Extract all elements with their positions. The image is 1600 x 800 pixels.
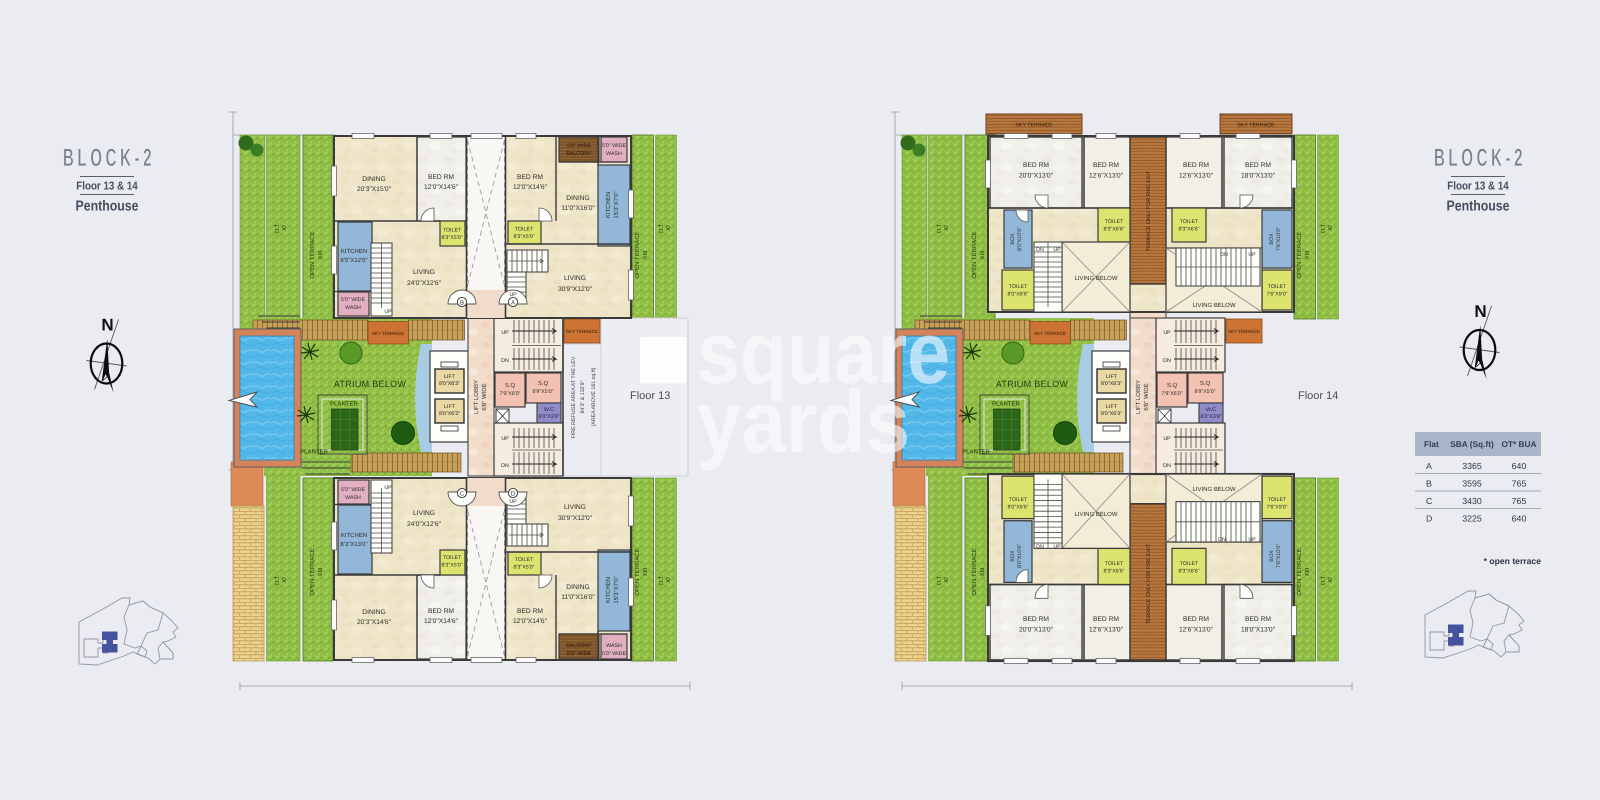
- svg-text:OPEN TERRACE: OPEN TERRACE: [634, 548, 641, 595]
- svg-text:BLOCK-2: BLOCK-2: [63, 145, 155, 173]
- svg-text:W.C: W.C: [544, 407, 554, 413]
- svg-text:BED RM: BED RM: [1023, 162, 1049, 169]
- svg-text:11'0"X16'0": 11'0"X16'0": [561, 205, 595, 212]
- svg-text:KITCHEN: KITCHEN: [341, 248, 367, 255]
- svg-text:BALGONY: BALGONY: [566, 643, 592, 649]
- svg-text:B: B: [1426, 479, 1432, 489]
- svg-text:XI: XI: [281, 225, 288, 231]
- svg-text:Penthouse: Penthouse: [1446, 199, 1509, 215]
- svg-text:LIVING BELOW: LIVING BELOW: [1192, 486, 1235, 493]
- svg-text:D: D: [511, 491, 516, 498]
- svg-text:5'0" WIDE: 5'0" WIDE: [341, 487, 366, 493]
- svg-text:N: N: [101, 316, 113, 335]
- svg-text:Floor 14: Floor 14: [1298, 390, 1338, 402]
- svg-text:BED RM: BED RM: [1023, 616, 1049, 623]
- svg-text:TOILET: TOILET: [1268, 497, 1287, 503]
- svg-text:UP: UP: [509, 499, 517, 505]
- svg-text:8'3"X5'0": 8'3"X5'0": [513, 565, 534, 571]
- svg-text:UP: UP: [1053, 247, 1061, 253]
- svg-text:BED RM: BED RM: [1245, 162, 1271, 169]
- svg-text:* open terrace: * open terrace: [1484, 556, 1542, 566]
- svg-text:20'0"X13'0": 20'0"X13'0": [1019, 173, 1054, 180]
- svg-text:5'0" WIDE: 5'0" WIDE: [341, 297, 366, 303]
- svg-text:8'3"X6'6": 8'3"X6'6": [1178, 569, 1199, 575]
- svg-text:765: 765: [1512, 496, 1527, 506]
- svg-text:XI: XI: [281, 577, 288, 583]
- svg-text:8'0"X10'6": 8'0"X10'6": [1017, 227, 1023, 251]
- svg-text:BED RM: BED RM: [517, 608, 543, 615]
- svg-text:3225: 3225: [1462, 514, 1482, 524]
- svg-text:20'0"X13'0": 20'0"X13'0": [1019, 627, 1054, 634]
- svg-text:TOILET: TOILET: [1180, 219, 1199, 225]
- svg-text:8'0"X8'6": 8'0"X8'6": [1007, 292, 1028, 298]
- svg-text:DN: DN: [1036, 247, 1044, 253]
- svg-text:BOX: BOX: [1010, 550, 1016, 562]
- svg-text:DN: DN: [1220, 252, 1228, 258]
- svg-text:ATRIUM BELOW: ATRIUM BELOW: [334, 379, 407, 389]
- svg-text:640: 640: [1512, 461, 1527, 471]
- svg-text:7'9"X6'0": 7'9"X6'0": [499, 391, 520, 397]
- svg-text:(AREA ABOVE 161 sq.ft): (AREA ABOVE 161 sq.ft): [591, 367, 597, 426]
- svg-text:12'6"X13'0": 12'6"X13'0": [1179, 173, 1214, 180]
- svg-text:TERRACE ONLY FOR FIRE EXIT: TERRACE ONLY FOR FIRE EXIT: [1146, 170, 1152, 251]
- svg-text:C: C: [460, 491, 465, 498]
- svg-text:TOILET: TOILET: [1180, 561, 1199, 567]
- svg-text:BED RM: BED RM: [1183, 162, 1209, 169]
- svg-text:LIFT: LIFT: [444, 404, 456, 410]
- svg-text:11'0"X16'0": 11'0"X16'0": [561, 594, 595, 601]
- svg-text:7'6"X10'0": 7'6"X10'0": [1276, 227, 1282, 251]
- svg-text:XI: XI: [665, 577, 672, 583]
- svg-text:C: C: [1426, 496, 1433, 506]
- svg-text:BED RM: BED RM: [1183, 616, 1209, 623]
- svg-text:TOILET: TOILET: [515, 227, 534, 233]
- svg-text:BED RM: BED RM: [517, 174, 543, 181]
- svg-text:SBA (Sq.ft): SBA (Sq.ft): [1450, 439, 1494, 449]
- svg-text:LIVING: LIVING: [564, 504, 586, 511]
- svg-text:Flat: Flat: [1424, 439, 1439, 449]
- svg-text:UP: UP: [501, 330, 509, 336]
- svg-text:15'3"X7'0": 15'3"X7'0": [613, 191, 620, 218]
- svg-text:S.Q: S.Q: [505, 382, 516, 389]
- svg-text:18'0"X13'0": 18'0"X13'0": [1241, 173, 1276, 180]
- svg-text:8'9"X5'0": 8'9"X5'0": [532, 389, 553, 395]
- svg-text:O.T.: O.T.: [274, 574, 281, 585]
- svg-text:640: 640: [1512, 514, 1527, 524]
- svg-text:5'0" WIDE: 5'0" WIDE: [567, 651, 592, 657]
- svg-text:WASH: WASH: [606, 151, 622, 157]
- svg-text:8'0"X10'6": 8'0"X10'6": [1017, 544, 1023, 568]
- svg-text:8'0"X6'3": 8'0"X6'3": [439, 411, 460, 417]
- svg-text:BED RM: BED RM: [428, 174, 454, 181]
- svg-text:5'0" WIDE: 5'0" WIDE: [567, 143, 592, 149]
- svg-text:XI: XI: [665, 225, 672, 231]
- svg-text:KITCHEN: KITCHEN: [605, 192, 612, 218]
- svg-text:8'0"X6'3": 8'0"X6'3": [439, 381, 460, 387]
- svg-text:30'9"X12'0": 30'9"X12'0": [558, 515, 593, 522]
- svg-text:7'6"X9'0": 7'6"X9'0": [1266, 292, 1287, 298]
- svg-text:UP: UP: [1248, 537, 1256, 543]
- svg-text:O.T.: O.T.: [274, 222, 281, 233]
- svg-text:KITCHEN: KITCHEN: [341, 532, 367, 539]
- svg-text:LIVING: LIVING: [413, 269, 435, 276]
- svg-text:XIII: XIII: [317, 567, 324, 576]
- svg-text:12'6"X13'0": 12'6"X13'0": [1179, 627, 1214, 634]
- svg-text:DINING: DINING: [566, 584, 589, 591]
- svg-text:12'0"X14'6": 12'0"X14'6": [424, 618, 459, 625]
- svg-text:TOILET: TOILET: [1105, 219, 1124, 225]
- svg-text:UP: UP: [1248, 252, 1256, 258]
- svg-text:8'3"X13'0": 8'3"X13'0": [340, 541, 367, 548]
- svg-text:WASH: WASH: [345, 305, 361, 311]
- svg-text:XIII: XIII: [642, 250, 649, 259]
- svg-text:12'0"X14'6": 12'0"X14'6": [513, 618, 548, 625]
- svg-text:LIVING BELOW: LIVING BELOW: [1074, 275, 1117, 282]
- svg-text:UP: UP: [384, 485, 392, 491]
- svg-text:7'6"X9'0": 7'6"X9'0": [1266, 505, 1287, 511]
- svg-text:TOILET: TOILET: [1268, 284, 1287, 290]
- svg-text:DINING: DINING: [362, 609, 385, 616]
- svg-text:BOX: BOX: [1269, 550, 1275, 562]
- svg-text:DN: DN: [501, 463, 509, 469]
- svg-text:UP: UP: [384, 309, 392, 315]
- svg-text:LIVING: LIVING: [564, 275, 586, 282]
- svg-text:7'6"X10'0": 7'6"X10'0": [1276, 544, 1282, 568]
- svg-text:12'6"X13'0": 12'6"X13'0": [1089, 173, 1124, 180]
- svg-text:BALCONY: BALCONY: [566, 151, 592, 157]
- svg-text:20'3"X14'6": 20'3"X14'6": [357, 619, 392, 626]
- svg-text:BED RM: BED RM: [1093, 616, 1119, 623]
- svg-text:UP: UP: [1053, 544, 1061, 550]
- svg-text:BED RM: BED RM: [1093, 162, 1119, 169]
- svg-text:8'5"X12'6": 8'5"X12'6": [340, 257, 367, 264]
- svg-text:OPEN TERRACE: OPEN TERRACE: [309, 231, 316, 278]
- svg-text:8'3"X6'6": 8'3"X6'6": [1178, 227, 1199, 233]
- svg-text:DN: DN: [1036, 544, 1044, 550]
- svg-text:LIVING BELOW: LIVING BELOW: [1192, 302, 1235, 309]
- svg-text:24'0"X12'6": 24'0"X12'6": [407, 521, 442, 528]
- svg-text:BED RM: BED RM: [1245, 616, 1271, 623]
- svg-text:BED RM: BED RM: [428, 608, 454, 615]
- svg-text:XIII: XIII: [642, 567, 649, 576]
- svg-text:Penthouse: Penthouse: [75, 199, 138, 215]
- svg-text:LIVING: LIVING: [413, 510, 435, 517]
- svg-text:12'0"X14'6": 12'0"X14'6": [424, 184, 459, 191]
- svg-text:A: A: [511, 300, 515, 307]
- svg-text:8'3"X6'6": 8'3"X6'6": [1103, 569, 1124, 575]
- svg-text:TOILET: TOILET: [1009, 497, 1028, 503]
- svg-text:8'3"X5'0": 8'3"X5'0": [441, 235, 462, 241]
- svg-text:LIFT: LIFT: [444, 374, 456, 380]
- svg-text:OPEN TERRACE: OPEN TERRACE: [634, 231, 641, 278]
- svg-text:FIRE REFUGE AREA AT THE LEV.: FIRE REFUGE AREA AT THE LEV.: [571, 356, 577, 439]
- svg-text:84'3" & 132'9": 84'3" & 132'9": [580, 380, 586, 413]
- svg-text:8'3"X5'0": 8'3"X5'0": [441, 563, 462, 569]
- svg-text:WASH: WASH: [606, 643, 622, 649]
- svg-text:3595: 3595: [1462, 479, 1482, 489]
- svg-text:WASH: WASH: [345, 495, 361, 501]
- svg-text:8'3"X5'0": 8'3"X5'0": [513, 234, 534, 240]
- svg-text:PLANTER: PLANTER: [300, 449, 328, 456]
- svg-text:TOILET: TOILET: [515, 557, 534, 563]
- svg-text:BOX: BOX: [1010, 233, 1016, 245]
- svg-text:O.T.: O.T.: [658, 222, 665, 233]
- svg-text:5'0" WIDE: 5'0" WIDE: [602, 651, 627, 657]
- svg-text:XIII: XIII: [317, 250, 324, 259]
- svg-text:A: A: [1426, 461, 1432, 471]
- svg-text:20'3"X15'0": 20'3"X15'0": [357, 186, 392, 193]
- svg-text:SKY TERRACE: SKY TERRACE: [1237, 123, 1275, 129]
- svg-text:8'3"X6'6": 8'3"X6'6": [1103, 227, 1124, 233]
- svg-text:OT* BUA: OT* BUA: [1501, 439, 1536, 449]
- svg-text:18'0"X13'0": 18'0"X13'0": [1241, 627, 1276, 634]
- svg-text:12'0"X14'6": 12'0"X14'6": [513, 184, 548, 191]
- svg-text:DINING: DINING: [566, 195, 589, 202]
- svg-text:LIVING BELOW: LIVING BELOW: [1074, 511, 1117, 518]
- svg-text:N: N: [1474, 302, 1486, 321]
- svg-text:3430: 3430: [1462, 496, 1482, 506]
- svg-text:Floor 13: Floor 13: [630, 390, 670, 402]
- svg-text:PLANTER: PLANTER: [330, 401, 358, 408]
- svg-text:12'6"X13'0": 12'6"X13'0": [1089, 627, 1124, 634]
- svg-text:TOILET: TOILET: [443, 555, 462, 561]
- svg-text:765: 765: [1512, 479, 1527, 489]
- svg-text:5'0" WIDE: 5'0" WIDE: [602, 143, 627, 149]
- svg-text:B: B: [460, 300, 464, 307]
- svg-text:6'6" WIDE: 6'6" WIDE: [481, 383, 488, 410]
- svg-text:TOILET: TOILET: [1105, 561, 1124, 567]
- svg-text:30'9"X12'0": 30'9"X12'0": [558, 286, 593, 293]
- svg-text:6'0"X3'9": 6'0"X3'9": [538, 414, 559, 420]
- svg-text:TOILET: TOILET: [443, 228, 462, 234]
- svg-text:SKY TERRACE: SKY TERRACE: [372, 331, 404, 336]
- svg-text:LIFT LOBBY: LIFT LOBBY: [473, 380, 480, 414]
- svg-text:8'0"X8'6": 8'0"X8'6": [1007, 505, 1028, 511]
- svg-text:D: D: [1426, 514, 1432, 524]
- svg-text:O.T.: O.T.: [658, 574, 665, 585]
- svg-text:TOILET: TOILET: [1009, 284, 1028, 290]
- svg-text:15'3"X7'0": 15'3"X7'0": [613, 576, 620, 603]
- svg-text:S.Q: S.Q: [538, 380, 549, 387]
- svg-text:BLOCK-2: BLOCK-2: [1434, 145, 1526, 173]
- svg-text:3365: 3365: [1462, 461, 1482, 471]
- svg-text:DN: DN: [501, 358, 509, 364]
- svg-text:KITCHEN: KITCHEN: [605, 577, 612, 603]
- svg-text:OPEN TERRACE: OPEN TERRACE: [309, 548, 316, 595]
- svg-text:SKY TERRACE: SKY TERRACE: [566, 329, 598, 334]
- svg-text:SKY TERRACE: SKY TERRACE: [1015, 123, 1053, 129]
- svg-text:yards: yards: [697, 372, 910, 471]
- svg-text:Floor 13 & 14: Floor 13 & 14: [76, 181, 138, 193]
- svg-text:DINING: DINING: [362, 176, 385, 183]
- svg-text:BOX: BOX: [1269, 233, 1275, 245]
- svg-text:DN: DN: [1218, 537, 1226, 543]
- svg-text:TERRACE ONLY FOR FIRE EXIT: TERRACE ONLY FOR FIRE EXIT: [1146, 543, 1152, 624]
- svg-text:UP: UP: [501, 436, 509, 442]
- svg-text:Floor 13 & 14: Floor 13 & 14: [1447, 181, 1509, 193]
- svg-text:24'0"X12'6": 24'0"X12'6": [407, 280, 442, 287]
